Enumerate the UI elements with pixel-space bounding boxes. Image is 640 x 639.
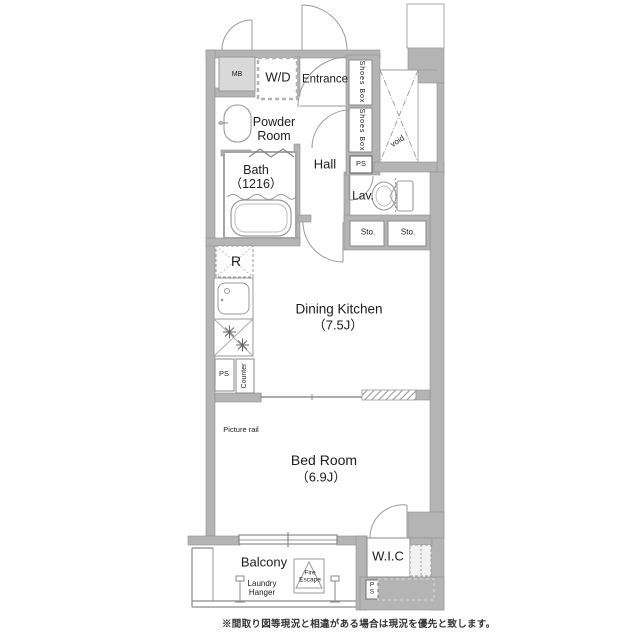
- kitchen-sink-icon: [214, 278, 253, 319]
- storage-1-label: Sto.: [361, 229, 375, 238]
- wash-basin-icon: [218, 105, 251, 142]
- shoes-box-2-label: Shoes Box: [357, 109, 365, 152]
- refrigerator-label: R: [231, 254, 241, 270]
- shoes-box-1-label: Shoes Box: [357, 61, 365, 104]
- floorplan: MB W/D Entrance Shoes Box Shoes Box PS v…: [0, 0, 640, 639]
- wd-label: W/D: [265, 71, 290, 86]
- powder-room-label: Powder Room: [253, 115, 295, 143]
- wic-label: W.I.C: [372, 550, 404, 565]
- balcony-window: [239, 532, 337, 547]
- balcony-label: Balcony: [241, 556, 287, 571]
- bed-room-size: （6.9J）: [296, 471, 347, 486]
- bed-room-label: Bed Room: [291, 453, 357, 469]
- ps-kitchen-label: PS: [219, 370, 229, 378]
- disclaimer-note: ※間取り図等現況と相違がある場合は現況を優先と致します。: [222, 616, 495, 630]
- dining-kitchen-size: （7.5J）: [313, 319, 364, 334]
- entrance-label: Entrance: [302, 74, 348, 87]
- storage-2-label: Sto.: [401, 229, 415, 238]
- mb-label: MB: [232, 71, 243, 79]
- counter-label: Counter: [241, 364, 249, 389]
- ps-entry-label: PS: [356, 160, 366, 168]
- lavatory-label: Lav.: [352, 189, 374, 202]
- hall-label: Hall: [314, 158, 336, 173]
- picture-rail-label: Picture rail: [223, 426, 258, 434]
- stove-icon: [214, 319, 253, 356]
- laundry-hanger-label: Laundry Hanger: [248, 580, 277, 598]
- bath-label: Bath （1216）: [230, 163, 283, 191]
- sliding-door: [261, 390, 416, 401]
- fire-escape-label: Fire Escape: [299, 570, 321, 585]
- dining-kitchen-label: Dining Kitchen: [295, 301, 382, 316]
- ps-bottom-label: P S: [370, 582, 374, 597]
- toilet-icon: [372, 178, 413, 214]
